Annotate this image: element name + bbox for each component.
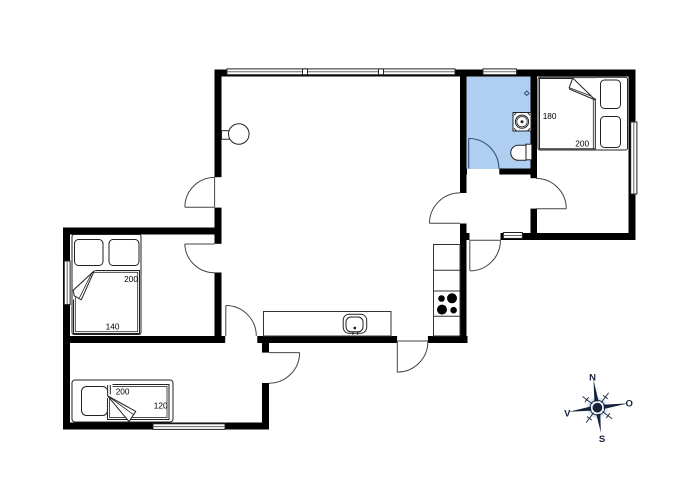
svg-text:140: 140	[106, 321, 120, 331]
svg-text:S: S	[599, 434, 605, 445]
svg-text:O: O	[626, 398, 633, 409]
svg-text:N: N	[589, 373, 596, 384]
svg-text:120: 120	[154, 400, 168, 410]
svg-text:180: 180	[543, 111, 557, 121]
svg-text:V: V	[564, 409, 571, 420]
svg-text:200: 200	[116, 386, 130, 396]
svg-text:200: 200	[124, 274, 138, 284]
svg-text:200: 200	[575, 138, 589, 148]
